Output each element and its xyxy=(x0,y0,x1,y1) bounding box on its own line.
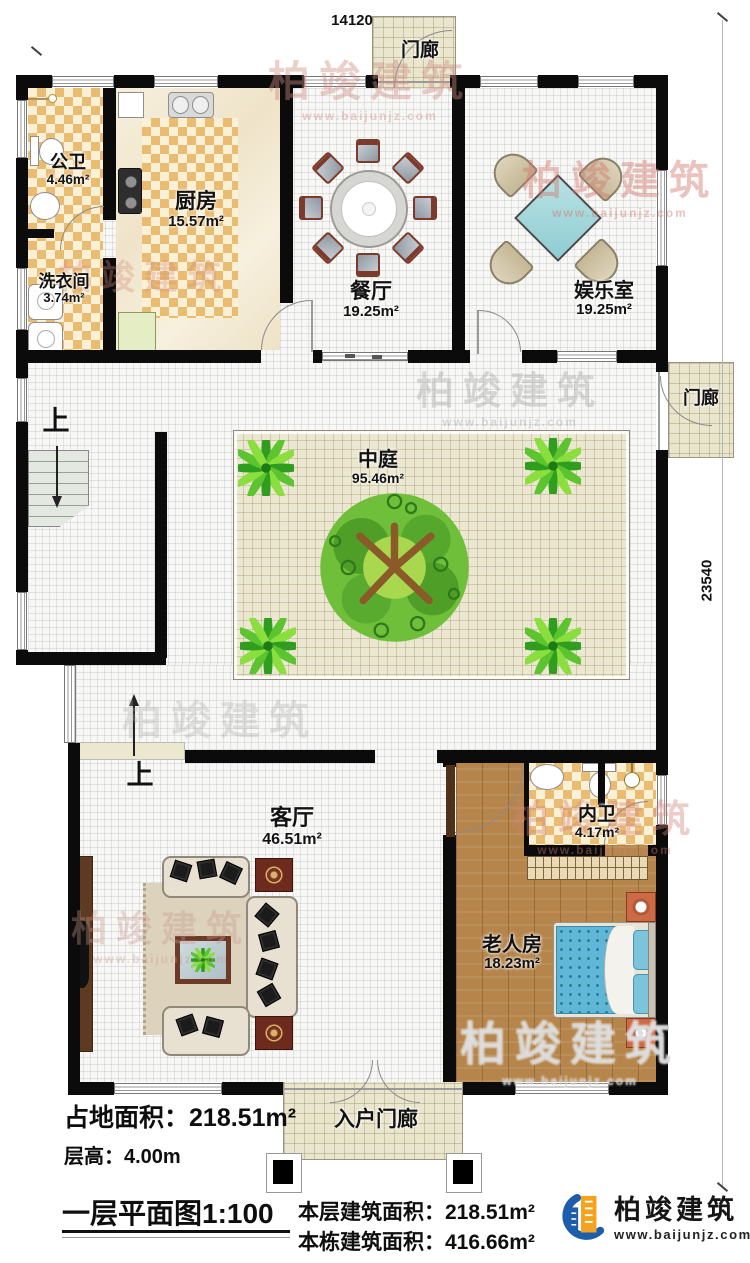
window xyxy=(17,100,27,158)
sliding-door-handle xyxy=(345,354,355,358)
window xyxy=(557,351,617,362)
company-logo-name: 柏竣建筑 xyxy=(614,1197,750,1224)
wall-segment xyxy=(656,825,668,1095)
footprint-area-value: 218.51m² xyxy=(189,1104,296,1132)
wall-segment xyxy=(16,158,28,268)
bed-duvet-fold xyxy=(604,926,634,1014)
wall-segment xyxy=(408,350,470,363)
window xyxy=(304,76,366,87)
plan-title-underline xyxy=(62,1230,290,1238)
footprint-area: 占地面积：218.51m² xyxy=(64,1098,296,1134)
floor-plan-canvas: 14120 23540 门廊 门廊 入户门廊 xyxy=(0,0,750,1263)
room-label-public-bath: 公卫 4.46m² xyxy=(28,152,108,187)
room-label-porch-top: 门廊 xyxy=(388,40,452,61)
nightstand xyxy=(626,1018,656,1048)
wall-segment xyxy=(222,1082,283,1095)
palm-plant xyxy=(238,440,294,496)
stairs-direction-line xyxy=(133,704,135,756)
window xyxy=(114,1083,222,1094)
dimension-line xyxy=(722,20,723,1188)
window xyxy=(515,1083,609,1094)
room-label-ensuite-bath: 内卫 4.17m² xyxy=(545,804,649,841)
wall-segment xyxy=(280,88,293,303)
wall-segment xyxy=(437,750,656,763)
dining-chair xyxy=(356,253,380,277)
wall-segment xyxy=(366,75,378,88)
bed-headboard xyxy=(648,922,656,1018)
stair-landing xyxy=(77,742,185,760)
building-total-area-value: 416.66m² xyxy=(445,1231,535,1254)
dimension-width: 14120 xyxy=(317,12,387,29)
wall-segment xyxy=(68,1082,114,1095)
room-label-dining: 餐厅 19.25m² xyxy=(321,280,421,320)
floor-height-label: 层高： xyxy=(64,1146,124,1168)
wardrobe xyxy=(527,856,648,880)
window xyxy=(657,775,667,825)
building-total-area: 本栋建筑面积：416.66m² xyxy=(298,1226,535,1256)
sliding-door-handle xyxy=(372,355,382,359)
dining-chair xyxy=(413,196,437,220)
wall-segment xyxy=(16,422,28,592)
dining-chair xyxy=(299,196,323,220)
sink xyxy=(530,764,564,790)
floor-height: 层高：4.00m xyxy=(64,1140,181,1169)
palm-plant xyxy=(240,618,296,674)
room-label-living: 客厅 46.51m² xyxy=(232,806,352,849)
stove xyxy=(118,168,142,214)
wall-segment xyxy=(656,75,668,170)
wall-segment xyxy=(450,75,480,88)
wall-segment xyxy=(16,75,28,100)
window xyxy=(578,76,634,87)
washing-machine xyxy=(37,330,55,348)
window xyxy=(52,76,114,87)
wall-segment xyxy=(538,75,578,88)
stairs-up-label: 上 xyxy=(118,760,162,790)
door-leaf xyxy=(311,300,313,352)
wall-lamp xyxy=(48,94,57,103)
wall-segment xyxy=(114,75,154,88)
company-logo: 柏竣建筑 www.baijunjz.com xyxy=(556,1190,750,1248)
room-label-entry-porch: 入户门廊 xyxy=(306,1108,446,1132)
wall-segment xyxy=(524,845,605,856)
floor-built-area-value: 218.51m² xyxy=(445,1201,535,1224)
wall-segment xyxy=(452,88,465,352)
wall-segment xyxy=(617,350,668,363)
wall-segment xyxy=(463,1082,515,1095)
wall-segment xyxy=(524,763,529,846)
window xyxy=(154,76,218,87)
wall-segment xyxy=(16,350,261,363)
room-label-courtyard: 中庭 95.46m² xyxy=(328,449,428,487)
table-plant xyxy=(191,948,215,972)
company-logo-icon xyxy=(556,1190,608,1248)
prep-table xyxy=(118,312,156,354)
palm-plant xyxy=(525,438,581,494)
wall-segment xyxy=(648,845,656,856)
window xyxy=(17,592,27,650)
wall-segment xyxy=(522,350,557,363)
stairs-arrow-icon xyxy=(129,694,139,706)
dimension-height: 23540 xyxy=(699,546,716,616)
floor-height-value: 4.00m xyxy=(124,1146,181,1168)
wall-segment xyxy=(656,450,668,775)
dining-table xyxy=(362,202,376,216)
stairs-up-label: 上 xyxy=(34,406,78,436)
wall-segment xyxy=(313,350,322,363)
sliding-door xyxy=(322,352,408,361)
tv xyxy=(79,920,89,988)
window xyxy=(64,665,76,743)
wall-segment xyxy=(28,229,54,238)
side-table xyxy=(255,1016,293,1050)
window xyxy=(657,170,667,266)
floor-drain xyxy=(624,772,640,788)
building-total-area-label: 本栋建筑面积： xyxy=(298,1231,445,1254)
door-leaf xyxy=(446,765,455,837)
floor-built-area-label: 本层建筑面积： xyxy=(298,1201,445,1224)
floor-built-area: 本层建筑面积：218.51m² xyxy=(298,1196,535,1226)
shower-hose xyxy=(631,763,633,773)
nightstand xyxy=(626,892,656,922)
wall-segment xyxy=(68,743,80,1095)
company-logo-url: www.baijunjz.com xyxy=(614,1227,750,1242)
wall-segment xyxy=(16,652,166,665)
room-label-kitchen: 厨房 15.57m² xyxy=(146,190,246,230)
wall-segment xyxy=(155,432,167,658)
room-label-laundry: 洗衣间 3.74m² xyxy=(18,272,110,306)
room-label-elder-bedroom: 老人房 18.23m² xyxy=(455,934,569,973)
sofa-pillow xyxy=(197,859,218,880)
window xyxy=(17,378,27,422)
corner-shelf xyxy=(118,92,144,118)
column xyxy=(273,1160,293,1184)
side-table xyxy=(255,858,293,892)
stairs-direction-line xyxy=(56,446,58,498)
door-threshold xyxy=(283,1088,463,1090)
palm-plant xyxy=(525,618,581,674)
window xyxy=(480,76,538,87)
footprint-area-label: 占地面积： xyxy=(64,1104,189,1132)
dining-chair xyxy=(356,139,380,163)
column xyxy=(453,1160,473,1184)
wall-segment xyxy=(598,763,605,805)
kitchen-sink xyxy=(172,96,189,114)
room-label-porch-right: 门廊 xyxy=(668,388,734,408)
kitchen-sink xyxy=(192,96,209,114)
sink xyxy=(30,192,60,220)
plan-title: 一层平面图1:100 xyxy=(62,1192,274,1232)
wall-segment xyxy=(218,75,304,88)
stairs-arrow-icon xyxy=(52,496,62,508)
dimension-tick xyxy=(31,46,42,56)
room-label-gameroom: 娱乐室 19.25m² xyxy=(544,280,664,319)
wall-segment xyxy=(185,750,375,763)
courtyard-tree xyxy=(312,485,477,650)
